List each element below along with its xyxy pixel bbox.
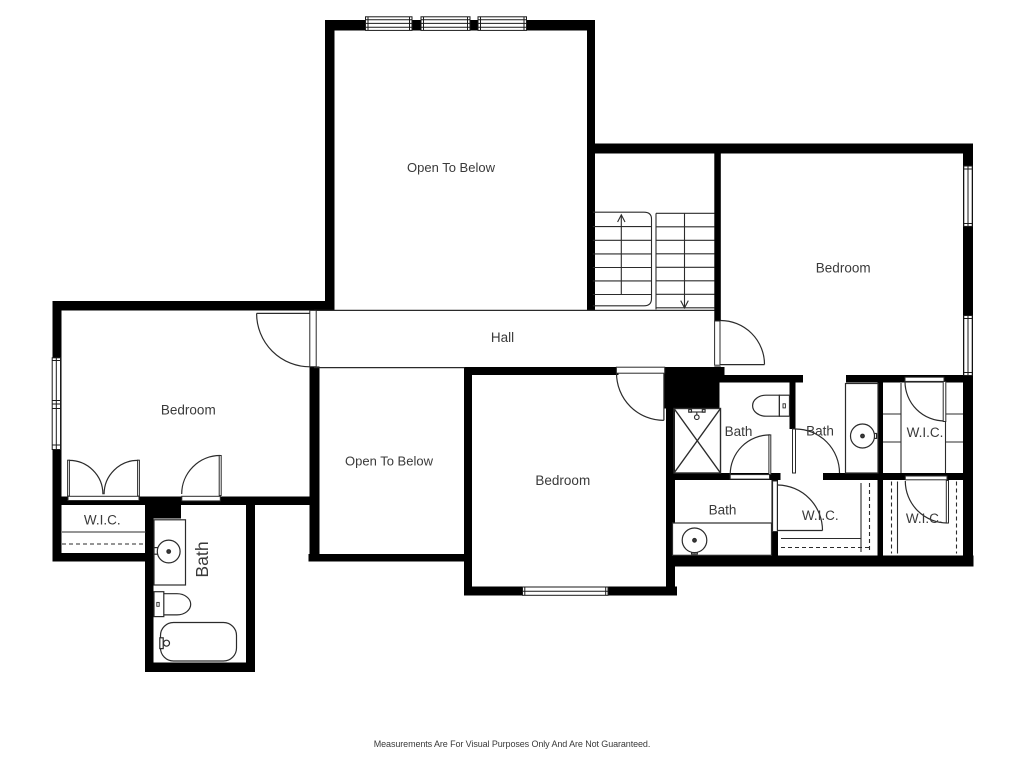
svg-text:Bath: Bath — [806, 424, 834, 439]
svg-text:W.I.C.: W.I.C. — [906, 511, 943, 526]
svg-text:Bath: Bath — [725, 424, 753, 439]
svg-text:W.I.C.: W.I.C. — [802, 508, 839, 523]
svg-text:Hall: Hall — [491, 330, 514, 345]
svg-text:W.I.C.: W.I.C. — [907, 425, 944, 440]
svg-text:W.I.C.: W.I.C. — [84, 513, 121, 528]
svg-text:Bedroom: Bedroom — [816, 261, 871, 276]
svg-text:Open To Below: Open To Below — [345, 453, 434, 468]
svg-text:Measurements Are For Visual Pu: Measurements Are For Visual Purposes Onl… — [374, 739, 650, 749]
svg-text:Bath: Bath — [192, 541, 212, 577]
svg-text:Open To Below: Open To Below — [407, 160, 496, 175]
svg-text:Bath: Bath — [709, 502, 737, 517]
svg-text:Bedroom: Bedroom — [535, 473, 590, 488]
svg-text:Bedroom: Bedroom — [161, 403, 216, 418]
